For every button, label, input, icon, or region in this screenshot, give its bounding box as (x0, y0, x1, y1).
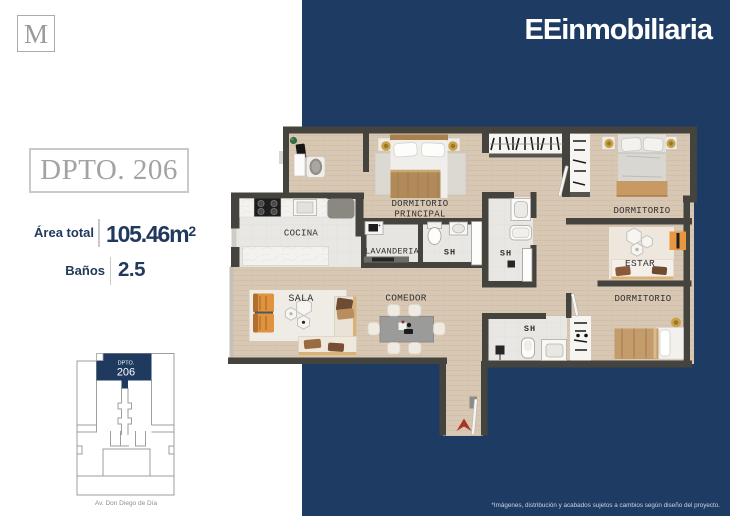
svg-text:SH: SH (444, 248, 456, 258)
svg-text:Av. Don Diego de Día: Av. Don Diego de Día (95, 500, 158, 507)
svg-text:DORMITORIO: DORMITORIO (614, 294, 671, 304)
svg-text:LAVANDERIA: LAVANDERIA (365, 247, 420, 257)
svg-text:SH: SH (500, 249, 512, 259)
svg-text:DORMITORIO: DORMITORIO (391, 199, 448, 209)
svg-text:206: 206 (117, 367, 135, 379)
svg-text:DORMITORIO: DORMITORIO (613, 206, 670, 216)
svg-text:ESTAR: ESTAR (625, 258, 655, 269)
svg-text:PRINCIPAL: PRINCIPAL (394, 210, 445, 220)
svg-text:COCINA: COCINA (284, 229, 319, 239)
svg-text:SALA: SALA (288, 294, 313, 305)
svg-text:SH: SH (524, 324, 536, 334)
svg-text:COMEDOR: COMEDOR (385, 293, 426, 304)
